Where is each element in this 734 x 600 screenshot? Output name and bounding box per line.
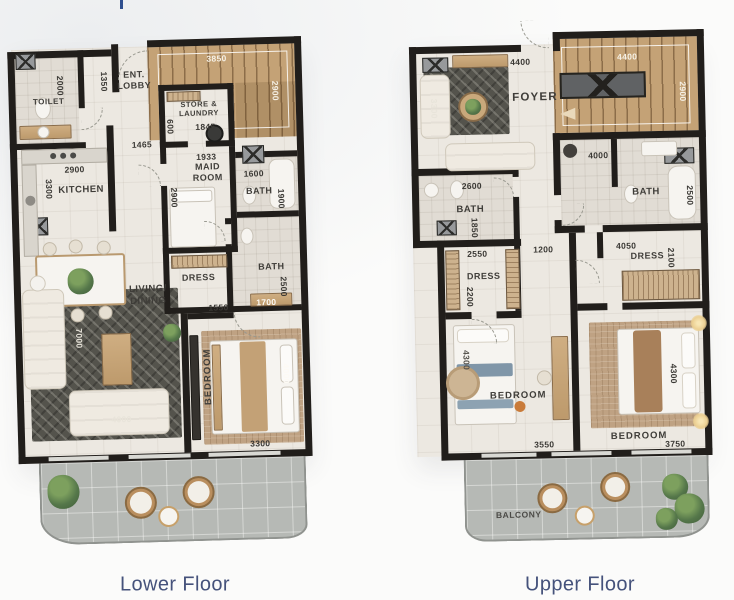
dim-bath-left-depth: 1850	[470, 218, 480, 238]
shaft-hatch	[15, 54, 35, 71]
dim-bedroom-depth: 4000	[281, 363, 292, 383]
wardrobe-rail	[171, 254, 227, 269]
seating-table-plant	[465, 99, 481, 115]
lower-balcony	[39, 456, 308, 545]
dim-store-width: 1845	[195, 122, 215, 133]
stair-railing	[559, 71, 646, 99]
wardrobe-right-rail	[505, 249, 520, 309]
bed-right-blanket	[633, 330, 663, 413]
wall-segment	[553, 32, 560, 51]
room-label-bath-right: BATH	[632, 186, 660, 198]
dim-bedroom-left-depth: 4300	[461, 350, 471, 370]
foyer-console	[452, 54, 508, 68]
room-label-dress-left: DRESS	[467, 271, 501, 283]
bedroom-left-desk	[551, 336, 570, 420]
dim-stairs-depth: 2900	[270, 81, 281, 101]
bath-right-counter	[641, 141, 677, 157]
room-label-ent-lobby: ENT. LOBBY	[115, 69, 154, 93]
dim-maid-depth: 2900	[169, 187, 180, 207]
dim-bath-left-width: 2600	[462, 181, 482, 191]
room-label-foyer: FOYER	[512, 90, 558, 105]
dim-dress-left-top-width: 2550	[467, 249, 487, 259]
dim-bedroom-left-width: 3550	[534, 439, 554, 449]
room-label-bath-mid: BATH	[246, 185, 273, 197]
dim-dress-left-depth: 2200	[465, 287, 475, 307]
dim-dress-right-depth: 2100	[666, 248, 676, 268]
dim-hall-width: 1465	[132, 139, 152, 150]
seating-sofa-bottom	[445, 142, 536, 172]
wall-segment	[611, 139, 618, 187]
kitchen-counter-side	[21, 165, 39, 257]
bed-pillow	[281, 386, 295, 424]
room-label-bedroom-right: BEDROOM	[611, 430, 668, 443]
wall-segment	[225, 218, 231, 224]
room-label-dress: DRESS	[182, 272, 216, 284]
cropped-title-fragment	[120, 0, 123, 9]
dim-living-depth: 7000	[74, 328, 85, 348]
dim-toilet-depth: 2000	[55, 76, 66, 96]
sofa-bottom	[69, 388, 170, 437]
room-label-living-dining: LIVING/ DINING	[122, 283, 175, 308]
dim-lobby-depth: 1350	[99, 71, 110, 91]
wall-segment	[597, 232, 604, 258]
dim-bedroom-right-depth: 4300	[669, 364, 679, 384]
room-label-balcony: BALCONY	[496, 509, 542, 521]
dim-dress-right-width: 4050	[616, 240, 636, 250]
dim-living-width: 4000	[111, 414, 131, 425]
lower-floor-plan: TOILET 2000 1350 ENT. LOBBY 3850 2900 ST…	[7, 32, 321, 552]
room-label-dress-right: DRESS	[630, 250, 664, 262]
dim-bath-lower-width: 1700	[256, 297, 276, 308]
wardrobe-left-rail	[445, 250, 460, 310]
room-label-maid: MAID ROOM	[186, 161, 229, 185]
coffee-table	[101, 333, 132, 386]
wall-segment	[496, 311, 521, 319]
floorplan-page: { "page": { "lower_title": "Lower Floor"…	[0, 0, 734, 600]
dim-passage-width: 1550	[208, 302, 228, 313]
dim-bath-right-depth: 2500	[685, 185, 695, 205]
dim-stairs-width: 3850	[206, 53, 226, 64]
shaft-hatch	[242, 145, 264, 164]
wardrobe-dress-right	[622, 269, 701, 301]
wall-segment	[445, 312, 471, 320]
lower-floor-title: Lower Floor	[120, 574, 230, 597]
dim-kitchen-width: 2900	[64, 164, 84, 175]
shaft-hatch	[437, 220, 457, 235]
shaft-hatch	[422, 57, 448, 73]
wall-segment	[160, 148, 166, 164]
dim-bath-mid-depth: 1900	[276, 188, 287, 208]
dim-bedroom-right-width: 3750	[665, 438, 685, 448]
dim-bath-mid-width: 1600	[244, 168, 264, 179]
wall-segment	[553, 133, 561, 195]
wall-segment	[188, 312, 234, 319]
wall-segment	[577, 303, 607, 311]
room-label-bedroom-left: BEDROOM	[490, 389, 547, 402]
balcony-plant	[656, 508, 678, 530]
room-label-bath-lower: BATH	[258, 261, 285, 273]
dim-hall-width: 1200	[533, 244, 553, 254]
upper-floor-title: Upper Floor	[525, 574, 635, 597]
dim-upper-stairs-depth: 2900	[678, 81, 688, 101]
dim-bath-right-width: 4000	[588, 150, 608, 160]
bed-right-pillow	[682, 372, 697, 408]
upper-floor-plan: 4400 FOYER 4400 2900 3300 2600 BATH 1850…	[403, 25, 726, 551]
room-label-bedroom: BEDROOM	[202, 348, 215, 405]
sofa-left	[22, 289, 67, 390]
bed-throw	[239, 341, 268, 432]
room-label-store-laundry: STORE & LAUNDRY	[170, 99, 229, 119]
room-label-kitchen: KITCHEN	[51, 184, 111, 198]
dim-seating-depth: 3300	[429, 99, 439, 119]
dim-foyer-width: 4400	[510, 57, 530, 67]
dim-store-depth: 600	[165, 119, 175, 134]
room-label-bath-left: BATH	[456, 204, 484, 216]
dim-upper-stairs-width: 4400	[617, 51, 637, 61]
dim-bath-lower-depth: 2500	[279, 276, 290, 296]
dim-bedroom-width: 3300	[250, 438, 270, 449]
stair-direction-arrow	[560, 108, 575, 120]
bed-right-pillow	[681, 332, 696, 368]
room-label-toilet: TOILET	[26, 97, 72, 108]
